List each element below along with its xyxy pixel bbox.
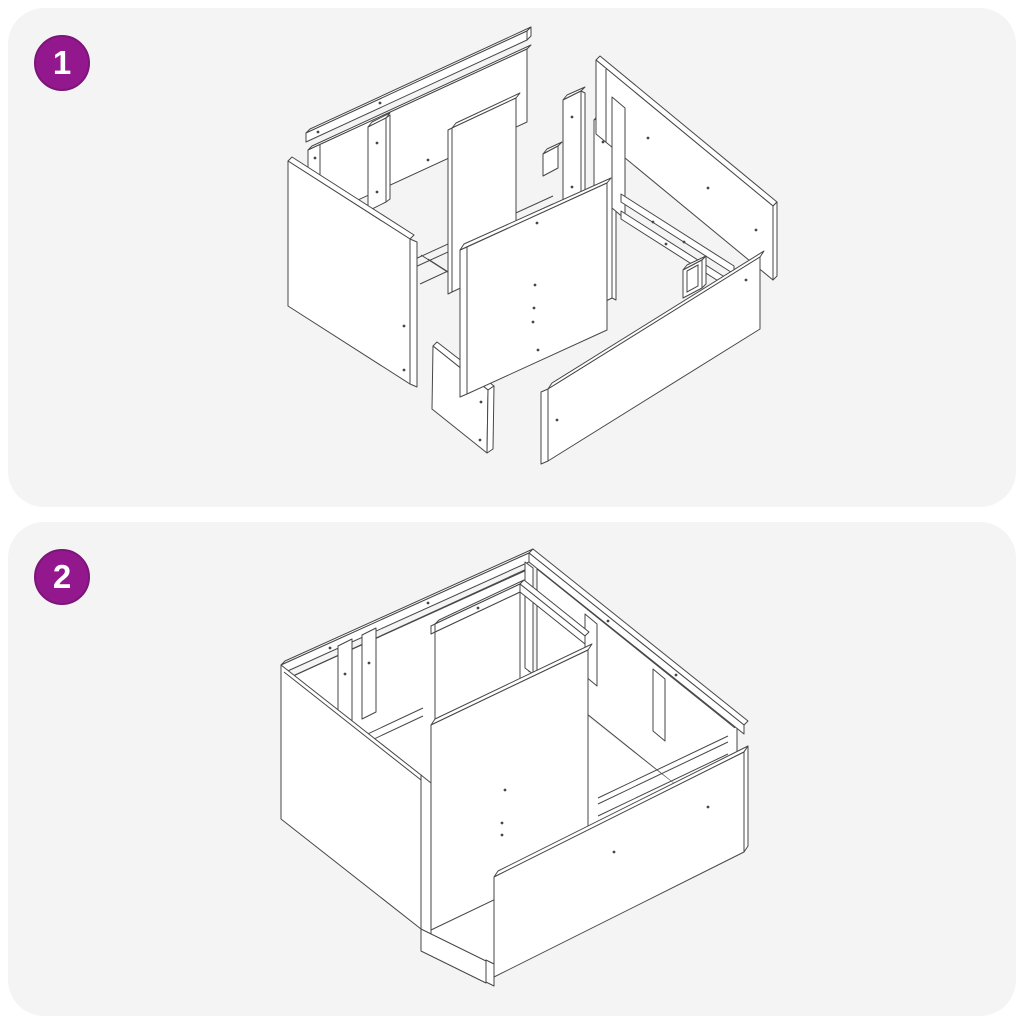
part-mid-block: [543, 142, 562, 176]
part-stud-left: [368, 113, 390, 211]
back-corner-post: [525, 562, 533, 674]
front-left-corner-post: [421, 775, 431, 937]
part-stud-right: [563, 87, 585, 205]
step-1-exploded-view-diagram: [8, 8, 1016, 507]
step-1-badge: 1: [34, 35, 90, 91]
part-back-right-wall: [596, 56, 777, 280]
step-1-number: 1: [53, 46, 71, 79]
step-2-panel: 2: [8, 522, 1016, 1016]
step-2-badge: 2: [34, 549, 90, 605]
step-1-panel: 1: [8, 8, 1016, 507]
front-corner-post: [486, 960, 494, 986]
step-2-assembled-view-diagram: [8, 522, 1016, 1016]
step-2-number: 2: [53, 560, 71, 593]
